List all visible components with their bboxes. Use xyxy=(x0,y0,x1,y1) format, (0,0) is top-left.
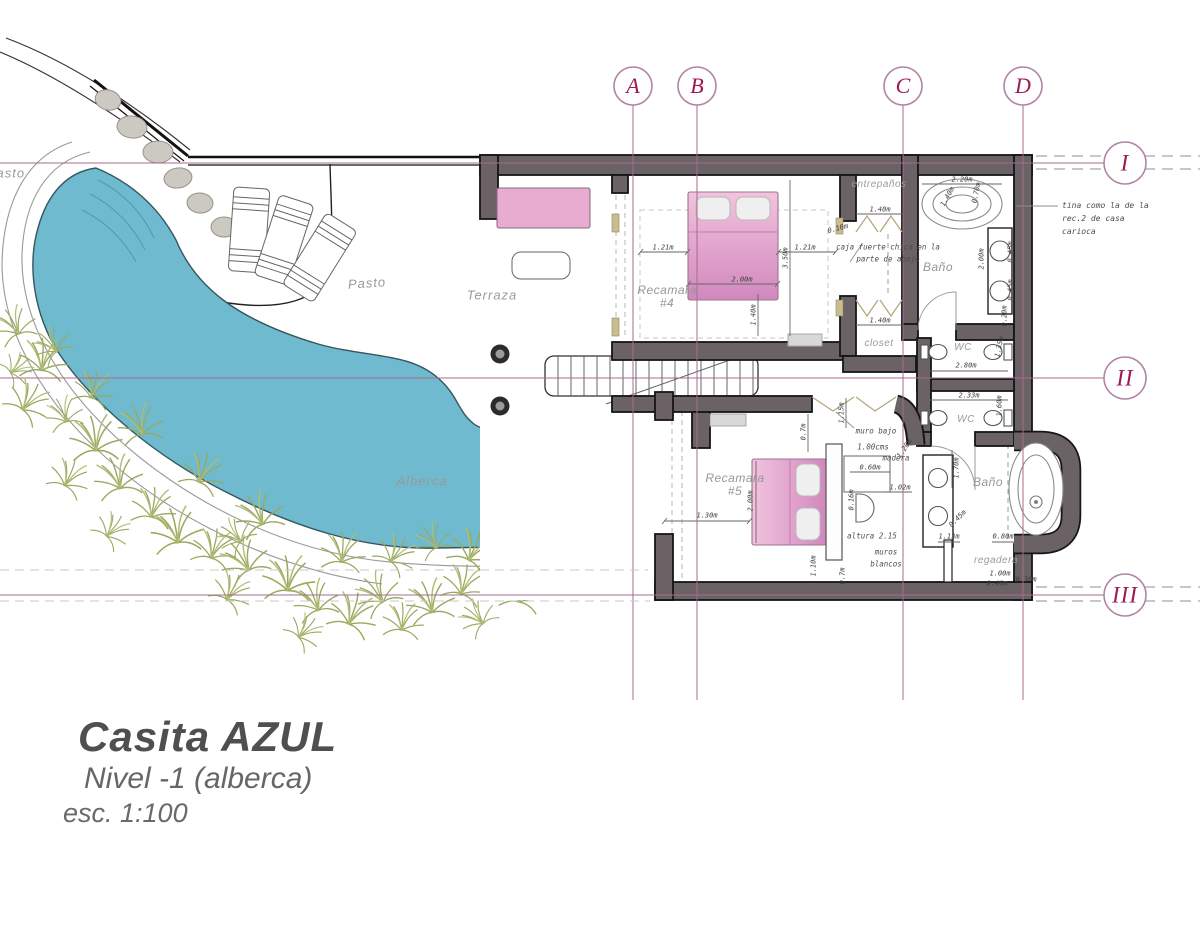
dim-wc-n-fix: 1.35m xyxy=(994,336,1005,358)
grid-label-iii: III xyxy=(1112,584,1138,607)
dim-shower-w: 1.00m xyxy=(989,571,1010,578)
dim-desk-w: 0.60m xyxy=(859,465,880,472)
note-tina-1: tina como la de la xyxy=(1062,202,1149,210)
dim-desk-side: 1.02m xyxy=(889,485,910,492)
grid-label-a: A xyxy=(626,75,639,97)
dim-rec4-right: 1.21m xyxy=(794,245,815,252)
grid-label-d: D xyxy=(1015,75,1031,97)
title-scale: esc. 1:100 xyxy=(63,800,188,827)
dim-bano-n-len: 2.00m xyxy=(979,248,986,269)
note-caja-2: parte de abajo xyxy=(856,255,919,263)
text-layer: A B C D I II III Pasto Pasto Terraza Alb… xyxy=(0,0,1200,927)
note-tina-2: rec.2 de casa xyxy=(1062,215,1125,223)
label-wc-sur: WC xyxy=(957,415,975,425)
dim-rec4-inner: 1.40m xyxy=(751,304,758,325)
dim-closet-w: 1.40m xyxy=(869,318,890,325)
label-wc-norte: WC xyxy=(954,343,972,353)
label-regadera: regadera xyxy=(974,556,1018,566)
note-muro-1: muro bajo xyxy=(856,427,897,435)
label-recamara4-num: #4 xyxy=(660,297,674,309)
dim-desk-gap: 0.16m xyxy=(849,489,856,510)
label-closet: closet xyxy=(864,339,893,349)
floor-plan-sheet: A B C D I II III Pasto Pasto Terraza Alb… xyxy=(0,0,1200,927)
dim-tub-n-a: 1.40m xyxy=(940,186,957,208)
label-entrepanos: entrepaños xyxy=(851,180,906,190)
dim-shower-w2: 0.40m xyxy=(986,581,1007,588)
note-altura-3: blancos xyxy=(870,560,902,568)
dim-rec5-bed: 2.00m xyxy=(748,490,755,511)
dim-rec5-left: 1.30m xyxy=(696,513,717,520)
dim-wc-s-w: 2.33m xyxy=(958,393,979,400)
dim-tub-n-w: 2.20m xyxy=(951,177,972,184)
dim-wc-n-w: 2.80m xyxy=(955,363,976,370)
label-recamara5: Recamara xyxy=(705,472,764,484)
dim-vanity-n-3: 0.20m xyxy=(1002,305,1009,326)
dim-shelf-depth: 0.10m xyxy=(827,223,849,235)
label-recamara4: Recamara xyxy=(637,284,696,296)
label-bano-sur: Baño xyxy=(973,476,1003,488)
grid-label-ii: II xyxy=(1116,367,1133,390)
grid-label-c: C xyxy=(896,75,911,97)
grid-label-b: B xyxy=(690,75,703,97)
dim-tub-n-b: 0.70m xyxy=(971,182,982,204)
dim-rec4-left: 1.21m xyxy=(652,245,673,252)
label-bano-norte: Baño xyxy=(923,261,953,273)
dim-rec5-b1: 1.10m xyxy=(811,555,818,576)
dim-rec4-bed: 2.00m xyxy=(731,277,752,284)
dim-entrepanos-w: 1.40m xyxy=(869,207,890,214)
dim-rec5-door: 1.15m xyxy=(839,402,846,423)
dim-bano-s-w2: 0.80m xyxy=(992,534,1013,541)
note-altura-2: muros xyxy=(875,548,898,556)
note-muro-2: 1.00cms xyxy=(857,443,889,451)
note-tina-3: carioca xyxy=(1062,228,1096,236)
title-level: Nivel -1 (alberca) xyxy=(84,764,312,794)
label-terraza: Terraza xyxy=(467,289,518,302)
label-pasto-left: Pasto xyxy=(0,167,25,180)
dim-bano-s-w1: 1.13m xyxy=(938,534,959,541)
dim-rec5-gap: 0.7m xyxy=(801,424,808,441)
dim-bano-s-diag: 0.45m xyxy=(948,509,968,529)
note-altura-1: altura 2.15 xyxy=(847,532,897,540)
label-pasto: Pasto xyxy=(347,275,386,291)
title-project: Casita AZUL xyxy=(78,716,337,758)
dim-rec5-b2: 0.7m xyxy=(840,568,847,585)
grid-label-i: I xyxy=(1121,152,1130,175)
note-caja-1: caja fuerte chica en la xyxy=(836,243,940,251)
label-recamara5-num: #5 xyxy=(728,485,742,497)
dim-wc-s-fix: 1.60m xyxy=(997,395,1004,416)
dim-bano-s-len: 1.70m xyxy=(954,457,961,478)
dim-vanity-n-1: 0.45m xyxy=(1008,241,1015,262)
label-alberca: Alberca xyxy=(396,475,447,488)
dim-vanity-n-2: 0.45m xyxy=(1008,279,1015,300)
dim-shower-d: 0.30m xyxy=(1015,577,1036,584)
dim-rec4-depth: 3.50m xyxy=(783,247,790,268)
